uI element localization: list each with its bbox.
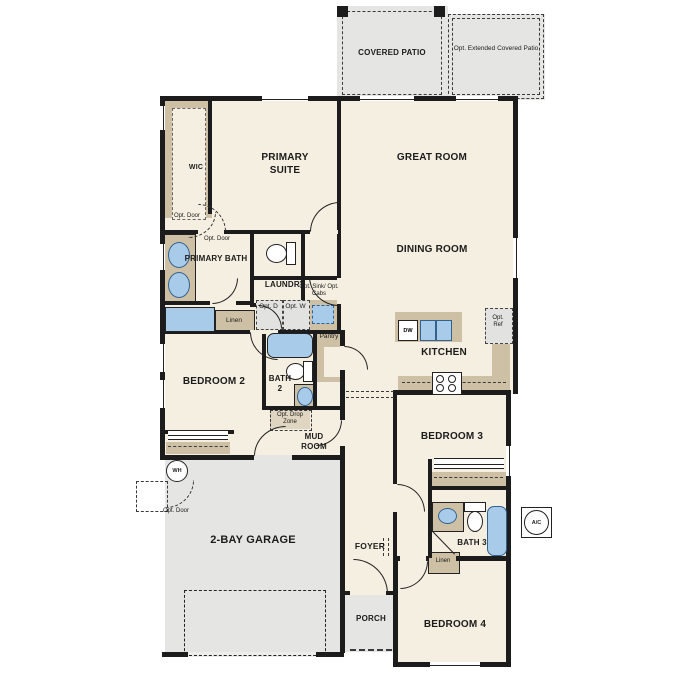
primary-shower xyxy=(165,307,215,332)
kitchen-label: KITCHEN xyxy=(408,347,480,360)
wall-garage-right xyxy=(340,455,345,595)
wall-bedroom4-left xyxy=(393,556,398,667)
bath3-sink xyxy=(438,508,457,524)
opt-ref-label: Opt. Ref xyxy=(487,315,509,329)
wall-bath3-left xyxy=(428,486,432,558)
window-bedroom4-bottom xyxy=(430,662,480,667)
opt-drop-zone-label: Opt. Drop Zone xyxy=(270,412,310,426)
porch-label: PORCH xyxy=(346,614,396,624)
linen-bath3-label: Linen xyxy=(428,552,458,572)
opt-door-wic-label: Opt. Door xyxy=(174,213,200,220)
opt-dryer-label: Opt. D xyxy=(257,303,280,311)
wall-bedroom3-left xyxy=(393,390,397,556)
water-heater: WH xyxy=(166,460,188,482)
dishwasher-label: DW xyxy=(403,328,412,334)
ac-unit-label: A/C xyxy=(532,520,541,526)
extended-patio-label: Opt. Extended Covered Patio xyxy=(452,45,540,53)
range-burner-2 xyxy=(448,375,456,383)
dishwasher-box: DW xyxy=(398,320,418,341)
patio-post-left xyxy=(337,6,348,17)
wall-bath3-top xyxy=(428,486,510,490)
window-bedroom3-right xyxy=(506,446,511,476)
bedroom2-closet-shelf xyxy=(166,442,230,454)
bedroom3-closet-shelf xyxy=(431,472,506,486)
opt-door-garage-label: Opt. Door xyxy=(162,508,190,515)
wall-bedroom4-top-b xyxy=(456,556,511,561)
hall-dash-upper xyxy=(346,391,394,392)
primary-suite-label: PRIMARY SUITE xyxy=(245,152,325,177)
foyer-label: FOYER xyxy=(344,541,396,552)
bath2-sink xyxy=(297,387,313,406)
opt-sink-cabs-label: Opt. Sink/ Opt. Cabs xyxy=(294,284,344,298)
window-great-room-top xyxy=(456,96,498,101)
wic-label: WIC xyxy=(180,164,212,173)
window-bedroom2-left-a xyxy=(160,344,165,372)
window-primary-suite-top xyxy=(262,96,308,101)
window-wic-left xyxy=(160,106,165,130)
wall-closet3-left xyxy=(428,459,432,489)
great-room-label: GREAT ROOM xyxy=(392,152,472,165)
range-burner-1 xyxy=(436,375,444,383)
opt-door-suite-label: Opt. Door xyxy=(204,236,230,243)
garage-door-outline xyxy=(184,590,326,656)
island-sink-left xyxy=(420,320,436,341)
bath2-toilet-tank xyxy=(303,361,313,382)
bedroom3-closet-slider xyxy=(434,458,504,469)
window-bedroom2-left-b xyxy=(160,380,165,408)
floor-plan: DW WH A/C COVERED PATIO Opt. Extended Co… xyxy=(0,0,687,687)
window-primary-bath-left xyxy=(160,244,165,270)
pantry-label: Pantry xyxy=(314,333,344,341)
wall-wic-right xyxy=(208,96,212,214)
bedroom2-closet-rod xyxy=(168,446,228,447)
dining-room-label: DINING ROOM xyxy=(392,244,472,257)
range-burner-3 xyxy=(436,384,444,392)
opt-laundry-sink xyxy=(312,305,334,324)
range-burner-4 xyxy=(448,384,456,392)
bedroom3-closet-rod xyxy=(434,477,503,478)
slider-patio-door xyxy=(360,96,414,101)
island-sink-right xyxy=(436,320,452,341)
ac-unit: A/C xyxy=(524,510,549,535)
wc-toilet-bowl xyxy=(266,244,287,263)
bedroom3-label: BEDROOM 3 xyxy=(406,431,498,444)
covered-patio-label: COVERED PATIO xyxy=(352,48,432,58)
bedroom2-closet-slider xyxy=(168,430,228,440)
bath2-label: BATH 2 xyxy=(266,374,294,394)
bath3-toilet-bowl xyxy=(467,511,483,532)
wall-bath2-right xyxy=(313,330,317,410)
mud-room-label: MUD ROOM xyxy=(292,432,336,452)
porch-edge-dash xyxy=(350,649,392,651)
bedroom2-label: BEDROOM 2 xyxy=(168,376,260,389)
extended-patio-inner-outline xyxy=(452,18,540,95)
bedroom4-label: BEDROOM 4 xyxy=(408,619,502,632)
bath3-tub xyxy=(487,506,507,556)
opt-washer-label: Opt. W xyxy=(284,303,307,311)
wc-toilet-tank xyxy=(286,242,296,265)
wall-wc-left xyxy=(250,234,254,307)
window-dining-right xyxy=(513,238,518,278)
patio-post-right xyxy=(434,6,445,17)
linen-hall-label: Linen xyxy=(215,310,253,332)
wall-porch-left xyxy=(340,591,345,653)
wall-pbath-bottom xyxy=(160,301,252,305)
garage-label: 2-BAY GARAGE xyxy=(208,534,298,548)
bath3-label: BATH 3 xyxy=(448,538,496,548)
primary-sink-2 xyxy=(168,272,190,298)
water-heater-label: WH xyxy=(172,468,181,474)
primary-bath-label: PRIMARY BATH xyxy=(184,254,248,264)
hall-dash-lower xyxy=(346,397,394,398)
